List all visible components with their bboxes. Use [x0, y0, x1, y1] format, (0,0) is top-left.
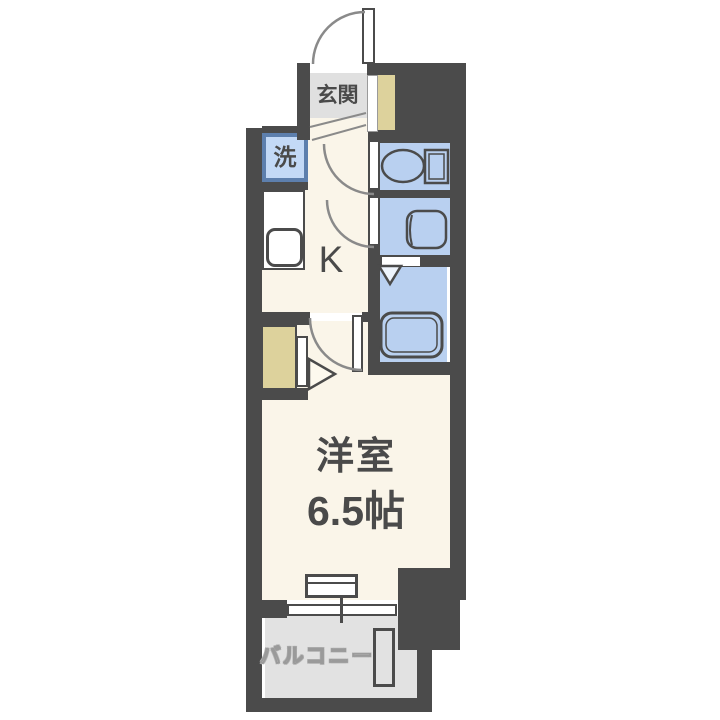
sideboard	[305, 574, 358, 598]
wall	[380, 190, 450, 198]
room-door-leaf	[352, 315, 363, 372]
wall	[362, 312, 380, 322]
bathroom	[376, 267, 447, 362]
washbasin-room	[380, 198, 450, 255]
closet-door-panel	[296, 336, 308, 387]
wall	[368, 362, 466, 375]
toilet-door-leaf	[368, 140, 380, 190]
wall-left	[246, 128, 262, 712]
main-room-name: 洋室	[262, 437, 450, 479]
entrance-label: 玄関	[308, 84, 367, 107]
wall	[262, 312, 310, 325]
entrance-door-leaf	[362, 8, 375, 64]
wall	[262, 600, 287, 618]
bathroom-shelf	[382, 257, 420, 266]
kitchen-label: K	[305, 240, 357, 281]
wall	[262, 182, 308, 190]
entrance-side-panel	[367, 75, 378, 132]
wall	[417, 650, 432, 700]
wall	[262, 126, 310, 133]
wall-block-bottom-right	[398, 568, 460, 650]
toilet-room	[380, 143, 450, 190]
washbasin-door-leaf	[368, 196, 380, 246]
kitchen-sink	[266, 228, 303, 267]
window-center-tick	[340, 597, 343, 623]
wall-bottom	[246, 698, 432, 712]
entrance-door-swing-arc	[313, 12, 365, 64]
wall	[378, 130, 450, 143]
shoe-cabinet	[378, 75, 395, 130]
sideboard-inner-line	[308, 582, 355, 584]
floor-plan: 玄関 洗 K 洋室 6.5帖 バルコニー	[0, 0, 720, 720]
washer-label: 洗	[262, 145, 308, 170]
closet	[261, 325, 297, 390]
balcony-label: バルコニー	[252, 645, 382, 668]
main-room-size: 6.5帖	[262, 489, 450, 534]
